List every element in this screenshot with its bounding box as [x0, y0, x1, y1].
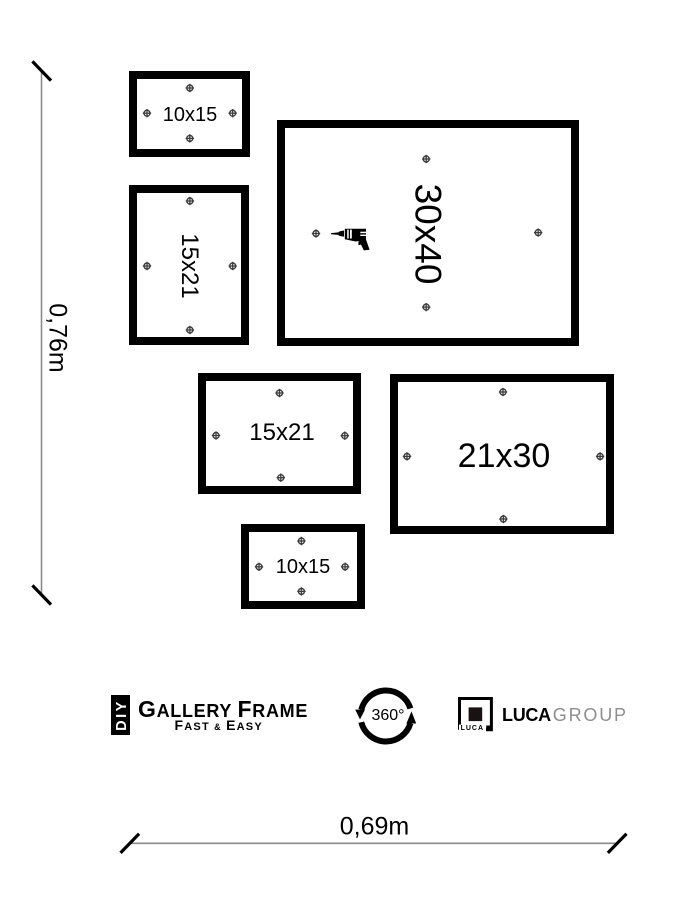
- svg-text:LUCA: LUCA: [461, 725, 484, 732]
